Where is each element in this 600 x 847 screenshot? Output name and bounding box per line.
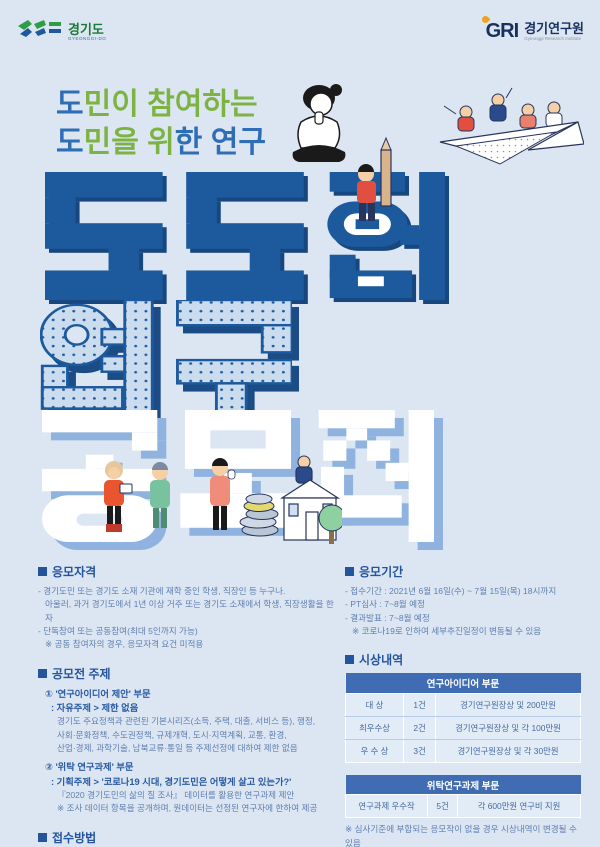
gri-acronym: GRI (486, 20, 519, 43)
pencil-person-illustration (350, 136, 398, 236)
table-row: 우 수 상 3건 경기연구원장상 및 각 30만원 (346, 739, 581, 762)
table-row: 최우수상 2건 경기연구원장상 및 각 100만원 (346, 716, 581, 739)
topic2-body: 『2020 경기도민의 삶의 질 조사』 데이터를 활용한 연구과제 제안 (38, 789, 336, 802)
gri-logo-korean: 경기연구원 (524, 22, 584, 36)
award-table-idea: 연구아이디어 부문 대 상 1건 경기연구원장상 및 200만원 최우수상 2건… (345, 673, 581, 763)
topic1-title: ① '연구아이디어 제안' 부문 (38, 687, 336, 701)
eligibility-line: ※ 공동 참여자의 경우, 응모자격 요건 미적용 (38, 638, 336, 651)
gri-logo: GRI 경기연구원 Gyeonggi Research Institute (486, 20, 584, 43)
gyeonggi-logo-english: GYEONGGI-DO (68, 36, 106, 41)
gyeonggi-symbol-icon (18, 20, 62, 44)
topic2-subtitle: : 기획주제 > '코로나19 시대, 경기도민은 어떻게 살고 있는가?' (38, 775, 336, 789)
period-line: - 결과발표 : 7~8월 예정 (345, 612, 585, 625)
period-line: - PT심사 : 7~8월 예정 (345, 598, 585, 611)
section-apply-title: 접수방법 (38, 829, 336, 846)
square-bullet-icon (38, 833, 47, 842)
eligibility-line: 아울러, 과거 경기도에서 1년 이상 거주 또는 경기도 소재에서 학생, 직… (38, 598, 336, 625)
gri-logo-english: Gyeonggi Research Institute (524, 36, 584, 41)
poster-subtitle: 도민이 참여하는 도민을 위한 연구 (56, 86, 266, 162)
topic1-body: 경기도 주요정책과 관련된 기본시리즈(소득, 주택, 대출, 서비스 등), … (38, 715, 336, 728)
award-table-idea-header: 연구아이디어 부문 (346, 673, 581, 693)
subtitle-line-2: 도민을 위한 연구 (56, 124, 266, 162)
table-row: 대 상 1건 경기연구원장상 및 200만원 (346, 693, 581, 716)
awards-note: ※ 심사기준에 부합되는 응모작이 없을 경우 시상내역이 변경될 수 있음 (345, 823, 585, 847)
eligibility-line: - 경기도민 또는 경기도 소재 기관에 재학 중인 학생, 직장인 등 누구나… (38, 585, 336, 598)
gyeonggi-do-logo: 경기도 GYEONGGI-DO (18, 20, 106, 44)
square-bullet-icon (345, 655, 354, 664)
square-bullet-icon (345, 567, 354, 576)
section-topics-title: 공모전 주제 (38, 665, 336, 682)
topic2-body: ※ 조사 데이터 항목을 공개하며, 원데이터는 선정된 연구자에 한하여 제공 (38, 802, 336, 815)
eligibility-line: - 단독참여 또는 공동참여(최대 5인까지 가능) (38, 625, 336, 638)
topic1-body: 사회·문화정책, 수도권정책, 규제개혁, 도시·지역계획, 교통, 환경, (38, 729, 336, 742)
gyeonggi-logo-korean: 경기도 (68, 23, 106, 36)
topic2-title: ② '위탁 연구과제' 부문 (38, 760, 336, 774)
poster: 경기도 GYEONGGI-DO GRI 경기연구원 Gyeonggi Resea… (0, 0, 600, 847)
square-bullet-icon (38, 669, 47, 678)
section-period-title: 응모기간 (345, 563, 585, 580)
topic1-body: 산업·경제, 과학기술, 남북교류·통일 등 주제선정에 대하여 제한 없음 (38, 742, 336, 755)
subtitle-line-1: 도민이 참여하는 (56, 86, 266, 124)
table-row: 연구과제 우수작 5건 각 600만원 연구비 지원 (346, 795, 581, 818)
section-eligibility-title: 응모자격 (38, 563, 336, 580)
word-yeongu-blocks (40, 300, 292, 426)
info-left-column: 응모자격 - 경기도민 또는 경기도 소재 기관에 재학 중인 학생, 직장인 … (38, 563, 336, 847)
thinking-person-illustration (281, 82, 357, 178)
award-table-research: 위탁연구과제 부문 연구과제 우수작 5건 각 600만원 연구비 지원 (345, 775, 581, 819)
section-awards-title: 시상내역 (345, 651, 585, 668)
period-note: ※ 코로나19로 인하여 세부추진일정이 변동될 수 있음 (345, 625, 585, 638)
street-scene-illustration (92, 450, 342, 554)
topic1-subtitle: : 자유주제 > 제한 없음 (38, 701, 336, 715)
info-right-column: 응모기간 - 접수기간 : 2021년 6월 16일(수) ~ 7월 15일(목… (345, 563, 585, 847)
award-table-research-header: 위탁연구과제 부문 (346, 775, 581, 795)
paper-plane-illustration (436, 84, 584, 176)
period-line: - 접수기간 : 2021년 6월 16일(수) ~ 7월 15일(목) 18시… (345, 585, 585, 598)
square-bullet-icon (38, 567, 47, 576)
